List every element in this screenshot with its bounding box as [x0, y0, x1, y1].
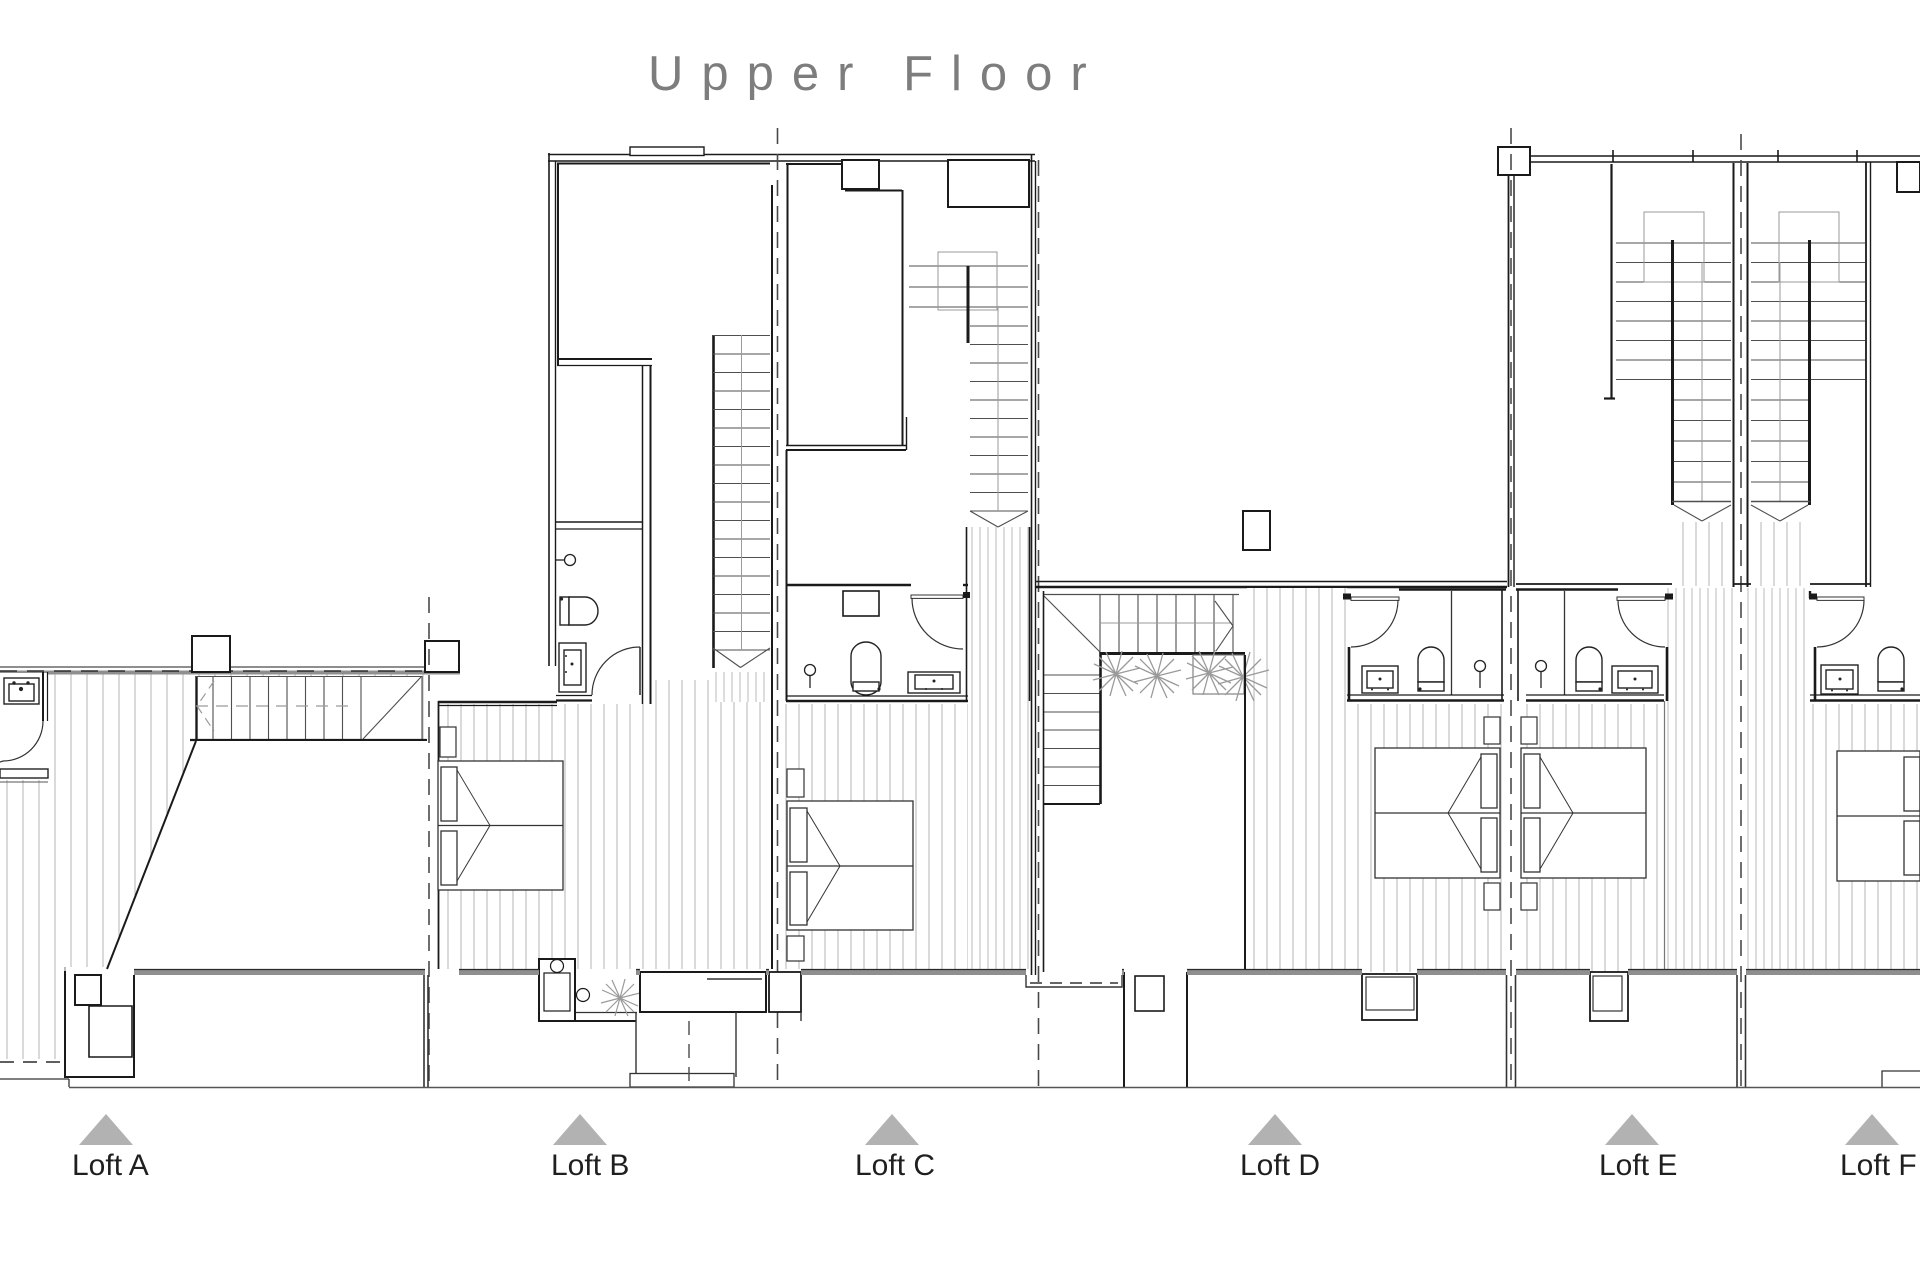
- svg-text:Loft A: Loft A: [72, 1149, 149, 1182]
- svg-text:Loft B: Loft B: [551, 1149, 629, 1182]
- svg-text:Upper Floor: Upper Floor: [648, 47, 1105, 101]
- svg-text:Loft F: Loft F: [1840, 1149, 1917, 1182]
- svg-text:Loft C: Loft C: [855, 1149, 935, 1182]
- svg-text:Loft D: Loft D: [1240, 1149, 1320, 1182]
- svg-text:Loft E: Loft E: [1599, 1149, 1677, 1182]
